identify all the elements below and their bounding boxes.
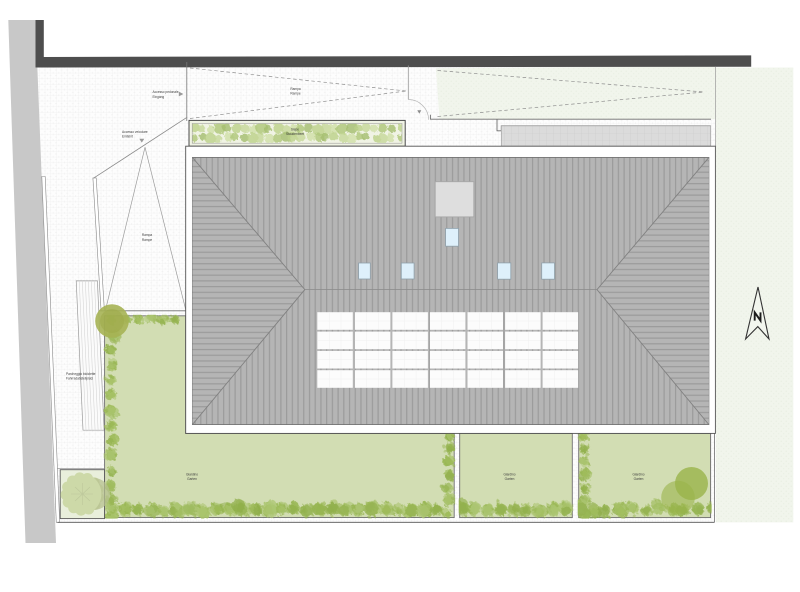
svg-text:Rampe: Rampe: [142, 238, 153, 242]
svg-text:Rampa: Rampa: [142, 233, 153, 237]
svg-text:Staudenbeet: Staudenbeet: [286, 132, 304, 136]
svg-text:Accesso pedonale: Accesso pedonale: [153, 90, 179, 94]
svg-text:Rampa: Rampa: [290, 87, 301, 91]
svg-text:Giardino: Giardino: [632, 472, 644, 476]
svg-text:Siepe: Siepe: [291, 128, 299, 132]
svg-text:Einfahrt: Einfahrt: [122, 134, 133, 138]
svg-text:Accesso veicolare: Accesso veicolare: [122, 130, 148, 134]
svg-text:Garten: Garten: [187, 477, 197, 481]
svg-text:Giardino: Giardino: [186, 472, 198, 476]
svg-text:Eingang: Eingang: [153, 95, 165, 99]
svg-text:Fahrradabstellplatz: Fahrradabstellplatz: [66, 376, 94, 380]
svg-text:Parcheggio biciclette: Parcheggio biciclette: [66, 372, 96, 376]
svg-text:Garten: Garten: [634, 477, 644, 481]
svg-text:Giardino: Giardino: [503, 472, 515, 476]
svg-text:Garten: Garten: [505, 477, 515, 481]
svg-text:Rampe: Rampe: [290, 91, 301, 95]
